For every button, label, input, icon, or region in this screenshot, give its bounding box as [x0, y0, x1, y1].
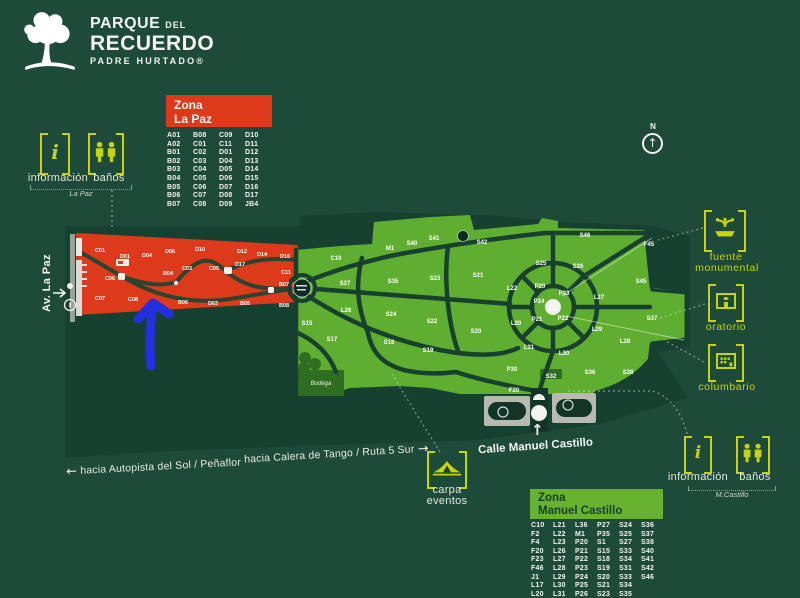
compass-north-label: N: [644, 122, 662, 131]
legend-code: C11: [219, 141, 245, 150]
rotunda-center: [545, 299, 561, 315]
sector-label: C11: [281, 270, 291, 276]
fountain-label-2: monumental: [682, 262, 772, 274]
legend-code: F46: [531, 565, 553, 574]
legend-code: S20: [597, 574, 619, 583]
event-tent-icon: [427, 451, 467, 485]
legend-code: P24: [575, 574, 597, 583]
legend-code: F23: [531, 556, 553, 565]
info-icon-mc: i: [684, 436, 712, 470]
sector-label: C05: [209, 266, 219, 272]
legend-code: P26: [575, 591, 597, 598]
legend-code: B06: [167, 192, 193, 201]
sector-label: C07: [95, 296, 105, 302]
legend-code: A02: [167, 141, 193, 150]
legend-code: D05: [219, 166, 245, 175]
sector-label: S38: [623, 370, 634, 376]
sector-label: C03: [182, 266, 192, 272]
fountain-icon: [704, 210, 746, 248]
legend-code: L28: [553, 565, 575, 574]
sector-label: S24: [386, 312, 397, 318]
legend-code: S27: [619, 539, 641, 548]
sector-label: S37: [647, 316, 658, 322]
legend-code: C09: [219, 132, 245, 141]
sector-label: S41: [429, 236, 440, 242]
sector-label: L20: [511, 321, 522, 327]
sector-label: D16: [280, 254, 290, 260]
sector-label: P30: [507, 367, 518, 373]
legend-code: S23: [597, 591, 619, 598]
legend-code: B02: [167, 158, 193, 167]
legend-code: D04: [219, 158, 245, 167]
legend-code: F2: [531, 531, 553, 540]
legend-code: L27: [553, 556, 575, 565]
sector-label: D14: [257, 252, 268, 258]
legend-code: D15: [245, 175, 271, 184]
legend-code: L31: [553, 591, 575, 598]
legend-code: S33: [619, 548, 641, 557]
sector-label: L22: [507, 286, 518, 292]
oratory-label: oratorio: [690, 321, 762, 333]
logo-line-1: PARQUE DEL: [90, 16, 214, 32]
legend-code: L21: [553, 522, 575, 531]
sector-label: L28: [620, 339, 631, 345]
legend-code: S34: [619, 582, 641, 591]
park-map: C01D01D04D06D10D12D14D16C06B04C03C05D17C…: [0, 0, 800, 598]
sector-label: D12: [237, 249, 247, 255]
legend-code: B03: [167, 166, 193, 175]
legend-code: L17: [531, 582, 553, 591]
legend-code: C03: [193, 158, 219, 167]
sector-label: P24: [534, 299, 545, 305]
sector-label: F20: [509, 388, 520, 394]
sector-label: P20: [535, 284, 546, 290]
legend-code: L36: [575, 522, 597, 531]
park-logo: PARQUE DEL RECUERDO PADRE HURTADO®: [18, 8, 248, 80]
legend-code: L30: [553, 582, 575, 591]
sector-label: C08: [128, 297, 138, 303]
legend-code: B05: [167, 184, 193, 193]
legend-code: P27: [597, 522, 619, 531]
legend-code: B04: [167, 175, 193, 184]
sector-label: B05: [240, 301, 250, 307]
sector-label: C01: [95, 248, 105, 254]
legend-manuel-castillo-header: Zona Manuel Castillo: [530, 489, 663, 519]
arrow-right-icon: →: [417, 441, 429, 457]
legend-code: D10: [245, 132, 271, 141]
entrance-arrow-icon: ↑: [531, 421, 544, 439]
restroom-figures-icon: [742, 442, 764, 464]
legend-code: P25: [575, 582, 597, 591]
legend-code: C10: [531, 522, 553, 531]
sector-label: L29: [592, 327, 603, 333]
sector-label: S40: [407, 241, 418, 247]
sector-label: S27: [340, 281, 351, 287]
legend-code: S21: [597, 582, 619, 591]
legend-code: D14: [245, 166, 271, 175]
legend-code: S31: [619, 565, 641, 574]
legend-code: S41: [641, 556, 663, 565]
sector-label: B08: [279, 303, 289, 309]
logo-line-3: PADRE HURTADO®: [90, 57, 214, 66]
legend-la-paz-codes: A01B08C09D10A02C01C11D11B01C02D01D12B02C…: [167, 132, 271, 209]
legend-code: S25: [619, 531, 641, 540]
area-tag-m-castillo: M.Castillo: [688, 481, 776, 491]
legend-code: D08: [219, 192, 245, 201]
sector-label: S20: [471, 329, 482, 335]
sector-label: B04: [163, 271, 174, 277]
sector-label: L30: [559, 351, 570, 357]
legend-code: S46: [641, 574, 663, 583]
street-av-la-paz: Av. La Paz: [41, 243, 55, 323]
sector-label: C10: [330, 256, 342, 262]
sector-label: S36: [585, 370, 596, 376]
sector-label: L31: [524, 345, 535, 351]
legend-code: M1: [575, 531, 597, 540]
legend-code: P21: [575, 548, 597, 557]
legend-code: C02: [193, 149, 219, 158]
logo-line-2: RECUERDO: [90, 33, 214, 54]
columbarium-label: columbario: [682, 381, 772, 393]
legend-code: D07: [219, 184, 245, 193]
sector-label: S22: [427, 319, 438, 325]
restroom-figures-icon: [94, 140, 118, 164]
legend-code: C05: [193, 175, 219, 184]
legend-code: C01: [193, 141, 219, 150]
oratory-icon: [708, 284, 744, 318]
legend-code: S1: [597, 539, 619, 548]
legend-code: D11: [245, 141, 271, 150]
legend-code: C07: [193, 192, 219, 201]
legend-code: S24: [619, 522, 641, 531]
legend-code: D12: [245, 149, 271, 158]
sector-label: P23: [559, 291, 570, 297]
legend-code: [641, 591, 663, 598]
sector-label: S46: [580, 233, 591, 239]
legend-code: B07: [167, 201, 193, 210]
legend-code: C06: [193, 184, 219, 193]
sector-label: B07: [279, 282, 289, 288]
legend-code: L22: [553, 531, 575, 540]
legend-code: S34: [619, 556, 641, 565]
sector-label: D17: [235, 262, 245, 268]
legend-code: C08: [193, 201, 219, 210]
legend-code: C04: [193, 166, 219, 175]
sector-label: C06: [105, 276, 115, 282]
legend-code: D16: [245, 184, 271, 193]
area-tag-la-paz: La Paz: [30, 180, 132, 190]
legend-code: S38: [641, 539, 663, 548]
sector-label: D04: [142, 253, 153, 259]
landmark-dot: [458, 231, 469, 242]
legend-code: L23: [553, 539, 575, 548]
legend-code: L29: [553, 574, 575, 583]
legend-code: [641, 582, 663, 591]
sector-label: D01: [120, 254, 130, 260]
restroom-icon-mc: [736, 436, 770, 470]
event-tent-label-2: eventos: [410, 495, 484, 507]
legend-code: F20: [531, 548, 553, 557]
sector-label: S25: [536, 261, 547, 267]
restroom-icon: [88, 133, 124, 171]
sector-label: P21: [532, 317, 543, 323]
sector-label: P22: [558, 316, 569, 322]
legend-code: S33: [619, 574, 641, 583]
legend-code: S40: [641, 548, 663, 557]
bodega-label: Bodega: [311, 381, 332, 387]
legend-code: B01: [167, 149, 193, 158]
legend-code: P20: [575, 539, 597, 548]
sector-label: S18: [384, 340, 395, 346]
legend-code: D06: [219, 175, 245, 184]
legend-code: B08: [193, 132, 219, 141]
sector-label: S35: [388, 279, 399, 285]
legend-code: S19: [597, 565, 619, 574]
sector-label: D03: [208, 301, 218, 307]
legend-code: J1: [531, 574, 553, 583]
legend-code: D01: [219, 149, 245, 158]
sector-label: S26: [573, 264, 584, 270]
legend-code: P35: [597, 531, 619, 540]
sector-label: S21: [473, 273, 484, 279]
sector-label: S32: [546, 374, 557, 380]
tree-logo-icon: [18, 8, 82, 72]
legend-code: L20: [531, 591, 553, 598]
sector-label: L27: [594, 295, 605, 301]
plaza-badge: [293, 279, 311, 297]
sector-label: B06: [178, 300, 188, 306]
legend-code: D13: [245, 158, 271, 167]
legend-code: L26: [553, 548, 575, 557]
legend-la-paz-header: Zona La Paz: [166, 95, 272, 127]
info-icon: i: [40, 133, 70, 171]
sector-label: F45: [644, 242, 655, 248]
legend-code: S37: [641, 531, 663, 540]
columbarium-icon: [708, 344, 744, 378]
sector-label: S19: [423, 348, 434, 354]
legend-manuel-castillo-codes: C10L21L36P27S24S36F2L22M1P35S25S37F4L23P…: [531, 522, 663, 598]
legend-code: S42: [641, 565, 663, 574]
legend-code: P22: [575, 556, 597, 565]
sector-label: D10: [195, 247, 205, 253]
sector-label: S42: [477, 240, 488, 246]
sector-label: S15: [302, 321, 313, 327]
compass-icon: ↑: [642, 133, 663, 154]
legend-code: S18: [597, 556, 619, 565]
legend-code: A01: [167, 132, 193, 141]
sector-label: M1: [386, 246, 395, 252]
legend-code: S15: [597, 548, 619, 557]
sector-label: D06: [165, 249, 175, 255]
sector-label: S17: [327, 337, 338, 343]
arrow-left-icon: ←: [66, 464, 78, 480]
legend-code: F4: [531, 539, 553, 548]
legend-code: S35: [619, 591, 641, 598]
legend-code: D17: [245, 192, 271, 201]
sector-label: L26: [341, 308, 352, 314]
sector-label: S45: [636, 279, 647, 285]
legend-code: S36: [641, 522, 663, 531]
legend-code: P23: [575, 565, 597, 574]
sector-label: S23: [430, 276, 441, 282]
legend-code: JB4: [245, 201, 271, 210]
legend-code: D09: [219, 201, 245, 210]
